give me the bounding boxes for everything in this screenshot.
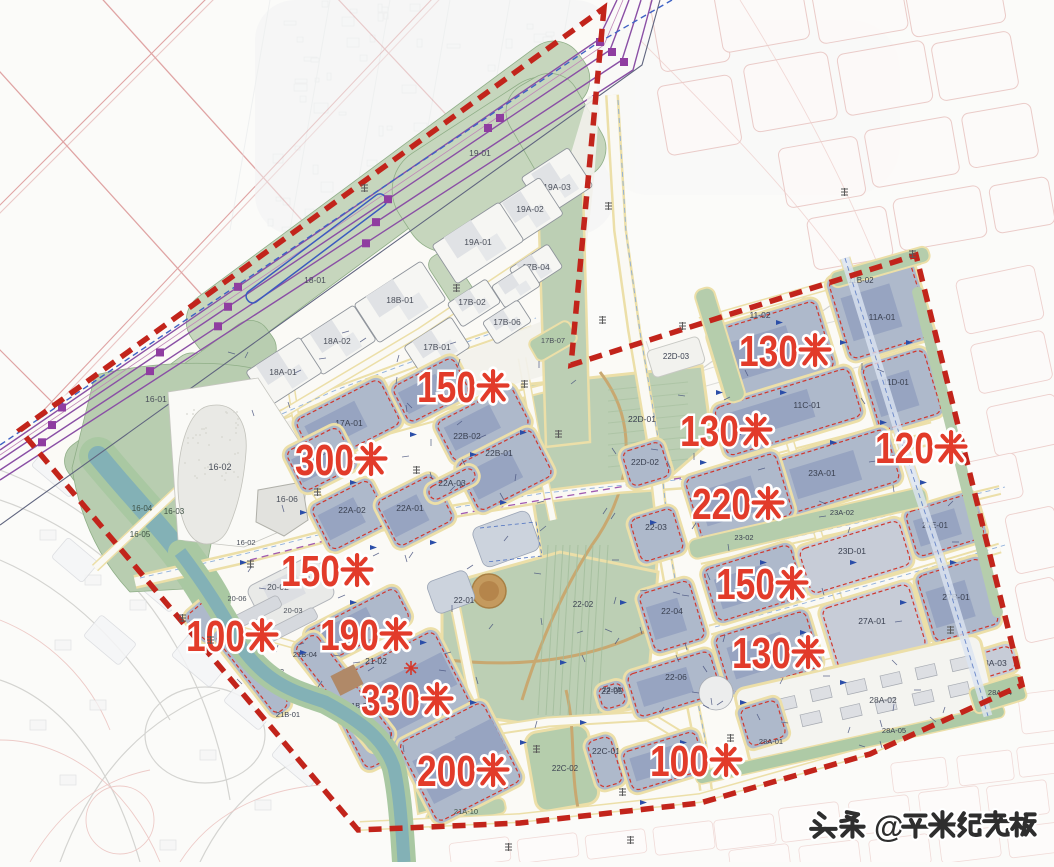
svg-text:150: 150 xyxy=(417,363,476,412)
svg-text:130: 130 xyxy=(739,327,798,376)
svg-text:22D-01: 22D-01 xyxy=(628,414,656,424)
svg-text:28A-01: 28A-01 xyxy=(759,737,783,746)
svg-text:18B-01: 18B-01 xyxy=(386,295,414,305)
svg-text:17B-06: 17B-06 xyxy=(493,317,521,327)
svg-text:100: 100 xyxy=(186,612,245,661)
svg-text:22C-02: 22C-02 xyxy=(552,764,579,773)
svg-text:19A-01: 19A-01 xyxy=(464,237,492,247)
svg-text:16-05: 16-05 xyxy=(130,530,151,539)
svg-text:17B-02: 17B-02 xyxy=(458,297,486,307)
svg-text:22B-01: 22B-01 xyxy=(485,448,513,458)
svg-text:150: 150 xyxy=(281,547,340,596)
svg-text:11-02: 11-02 xyxy=(749,310,770,320)
svg-text:27A-01: 27A-01 xyxy=(858,616,886,626)
svg-text:21B-01: 21B-01 xyxy=(276,710,300,719)
svg-text:16-06: 16-06 xyxy=(276,494,298,504)
svg-text:18-01: 18-01 xyxy=(304,275,326,285)
svg-text:22C-01: 22C-01 xyxy=(592,746,620,756)
svg-text:20-03: 20-03 xyxy=(283,606,302,615)
svg-text:330: 330 xyxy=(361,676,420,725)
svg-text:190: 190 xyxy=(320,611,379,660)
svg-text:150: 150 xyxy=(716,560,775,609)
svg-text:23A-01: 23A-01 xyxy=(808,468,836,478)
svg-text:19-01: 19-01 xyxy=(469,148,491,158)
svg-text:22D-02: 22D-02 xyxy=(631,457,659,467)
svg-text:130: 130 xyxy=(732,629,791,678)
svg-text:18A-01: 18A-01 xyxy=(269,367,297,377)
svg-text:28A-02: 28A-02 xyxy=(869,695,897,705)
svg-text:22D-03: 22D-03 xyxy=(663,352,690,361)
svg-text:22-06: 22-06 xyxy=(665,672,687,682)
svg-text:22B-02: 22B-02 xyxy=(453,431,481,441)
svg-text:23D-01: 23D-01 xyxy=(838,546,866,556)
svg-text:21B-04: 21B-04 xyxy=(293,650,317,659)
svg-text:20-06: 20-06 xyxy=(227,594,246,603)
svg-text:11A-01: 11A-01 xyxy=(869,312,896,322)
svg-text:100: 100 xyxy=(650,737,709,786)
svg-text:16-02: 16-02 xyxy=(208,462,231,472)
svg-text:22A-02: 22A-02 xyxy=(338,505,366,515)
svg-text:22-01: 22-01 xyxy=(454,596,475,605)
svg-text:22A-01: 22A-01 xyxy=(396,503,424,513)
svg-text:120: 120 xyxy=(875,424,934,473)
svg-text:22-03: 22-03 xyxy=(645,522,667,532)
svg-text:16-04: 16-04 xyxy=(132,504,153,513)
svg-text:300: 300 xyxy=(295,436,354,485)
svg-text:17B-01: 17B-01 xyxy=(423,342,451,352)
svg-text:11C-01: 11C-01 xyxy=(793,400,821,410)
svg-text:22-05: 22-05 xyxy=(602,685,621,694)
svg-text:130: 130 xyxy=(680,407,739,456)
svg-text:200: 200 xyxy=(417,747,476,796)
svg-text:16-02: 16-02 xyxy=(236,538,255,547)
svg-text:220: 220 xyxy=(692,480,751,529)
svg-text:19A-02: 19A-02 xyxy=(516,204,544,214)
svg-text:17B-07: 17B-07 xyxy=(541,336,565,345)
svg-text:22-02: 22-02 xyxy=(573,600,594,609)
svg-text:16-03: 16-03 xyxy=(164,507,185,516)
svg-text:21A-10: 21A-10 xyxy=(454,807,478,816)
svg-text:18A-02: 18A-02 xyxy=(323,336,351,346)
svg-text:16-01: 16-01 xyxy=(145,394,167,404)
svg-text:23-02: 23-02 xyxy=(734,533,753,542)
svg-text:22-04: 22-04 xyxy=(661,606,683,616)
svg-text:23A-02: 23A-02 xyxy=(830,508,854,517)
svg-text:28A-05: 28A-05 xyxy=(882,726,906,735)
